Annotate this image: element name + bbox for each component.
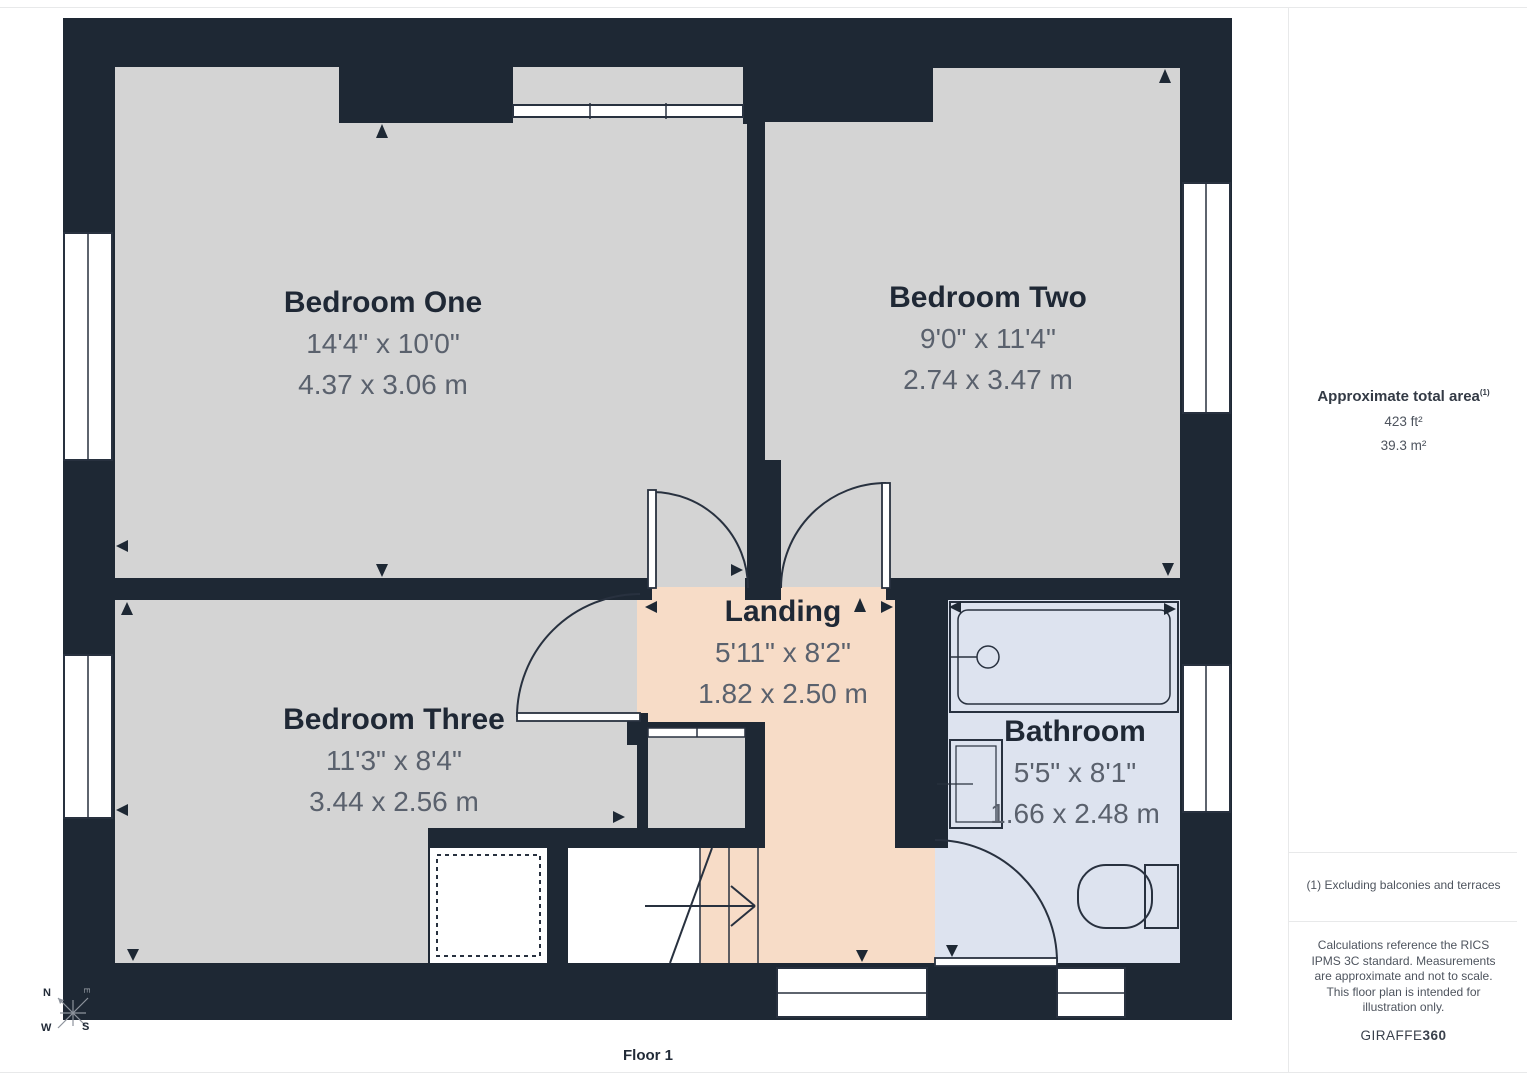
- total-area-m: 39.3 m²: [1289, 438, 1518, 453]
- room-dim-imperial: 14'4" x 10'0": [284, 323, 482, 364]
- room-label-bedroom-two: Bedroom Two 9'0" x 11'4" 2.74 x 3.47 m: [889, 278, 1087, 400]
- room-label-bedroom-three: Bedroom Three 11'3" x 8'4" 3.44 x 2.56 m: [283, 700, 505, 822]
- room-dim-metric: 2.74 x 3.47 m: [889, 359, 1087, 400]
- bathroom-door-leaf: [935, 958, 1057, 966]
- room-name: Bedroom Two: [889, 278, 1087, 318]
- compass-north-label: N: [43, 987, 51, 999]
- floor-label: Floor 1: [623, 1047, 673, 1064]
- brand-logo: GIRAFFE360: [1289, 1028, 1518, 1043]
- info-sidebar: Approximate total area(1) 423 ft² 39.3 m…: [1289, 8, 1518, 1072]
- compass-south-label: S: [82, 1021, 89, 1033]
- room-name: Landing: [698, 592, 868, 632]
- total-area-ft: 423 ft²: [1289, 414, 1518, 429]
- sidebar-divider: [1289, 852, 1517, 853]
- disclaimer-text: Calculations reference the RICS IPMS 3C …: [1302, 938, 1505, 1016]
- room-dim-imperial: 9'0" x 11'4": [889, 318, 1087, 359]
- total-area-title-text: Approximate total area: [1317, 388, 1480, 405]
- room-dim-metric: 3.44 x 2.56 m: [283, 781, 505, 822]
- floor-plan-page: Bedroom One 14'4" x 10'0" 4.37 x 3.06 m …: [0, 0, 1527, 1080]
- sidebar-divider: [1289, 921, 1517, 922]
- closet-sliding-door: [648, 728, 745, 737]
- compass-east-label: E: [82, 988, 91, 993]
- bedroom-three-door-leaf: [517, 713, 640, 721]
- storage-dashed-box: [437, 855, 540, 956]
- room-label-landing: Landing 5'11" x 8'2" 1.82 x 2.50 m: [698, 592, 868, 714]
- bedroom-two-door-leaf: [882, 483, 890, 588]
- bedroom-one-door-leaf: [648, 490, 656, 588]
- room-dim-metric: 1.66 x 2.48 m: [990, 793, 1160, 834]
- compass-west-label: W: [41, 1022, 51, 1034]
- total-area-title: Approximate total area(1): [1289, 388, 1518, 405]
- room-dim-metric: 1.82 x 2.50 m: [698, 673, 868, 714]
- room-dim-metric: 4.37 x 3.06 m: [284, 364, 482, 405]
- brand-number: 360: [1422, 1028, 1446, 1043]
- room-dim-imperial: 5'5" x 8'1": [990, 752, 1160, 793]
- total-area-footnote-marker: (1): [1480, 388, 1490, 397]
- room-name: Bedroom Three: [283, 700, 505, 740]
- room-dim-imperial: 11'3" x 8'4": [283, 740, 505, 781]
- total-area-block: Approximate total area(1) 423 ft² 39.3 m…: [1289, 388, 1518, 453]
- room-name: Bedroom One: [284, 283, 482, 323]
- room-label-bathroom: Bathroom 5'5" x 8'1" 1.66 x 2.48 m: [990, 712, 1160, 834]
- footnote-text: (1) Excluding balconies and terraces: [1299, 878, 1508, 892]
- room-name: Bathroom: [990, 712, 1160, 752]
- room-dim-imperial: 5'11" x 8'2": [698, 632, 868, 673]
- brand-name: GIRAFFE: [1360, 1028, 1422, 1043]
- room-label-bedroom-one: Bedroom One 14'4" x 10'0" 4.37 x 3.06 m: [284, 283, 482, 405]
